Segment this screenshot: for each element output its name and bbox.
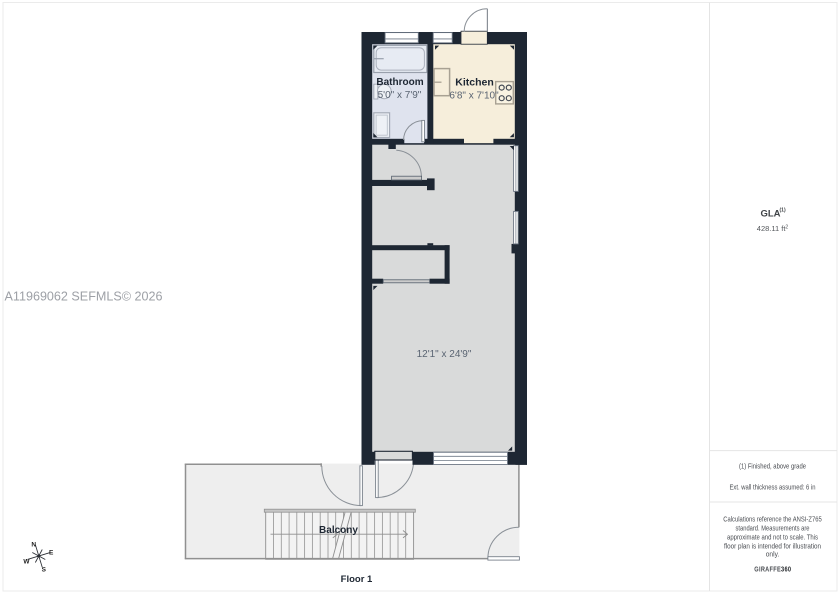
svg-text:(1) Finished, above grade: (1) Finished, above grade — [739, 461, 806, 470]
svg-text:A11969062 SEFMLS© 2026: A11969062 SEFMLS© 2026 — [5, 288, 163, 303]
svg-text:GLA: GLA — [760, 209, 780, 220]
svg-text:standard. Measurements are: standard. Measurements are — [736, 524, 810, 533]
svg-text:6'8" x 7'10": 6'8" x 7'10" — [449, 91, 499, 102]
svg-text:(1): (1) — [780, 208, 786, 214]
svg-text:Bathroom: Bathroom — [376, 77, 423, 88]
svg-text:Calculations reference the ANS: Calculations reference the ANSI-Z765 — [723, 515, 822, 524]
svg-text:12'1" x 24'9": 12'1" x 24'9" — [417, 349, 472, 360]
svg-text:E: E — [49, 550, 54, 557]
svg-text:W: W — [23, 559, 30, 566]
svg-text:Kitchen: Kitchen — [455, 77, 494, 89]
svg-text:Ext. wall thickness assumed: 6: Ext. wall thickness assumed: 6 in — [730, 482, 816, 491]
svg-text:Floor 1: Floor 1 — [341, 574, 373, 585]
svg-text:approximate and not to scale.: approximate and not to scale. This — [727, 533, 818, 542]
svg-text:only.: only. — [766, 550, 780, 559]
svg-text:5'0" x 7'9": 5'0" x 7'9" — [378, 90, 422, 101]
svg-text:428.11 ft2: 428.11 ft2 — [757, 224, 789, 233]
svg-text:GIRAFFE360: GIRAFFE360 — [754, 564, 791, 573]
svg-text:S: S — [42, 566, 47, 573]
svg-text:N: N — [31, 542, 36, 549]
svg-text:Balcony: Balcony — [319, 525, 358, 536]
